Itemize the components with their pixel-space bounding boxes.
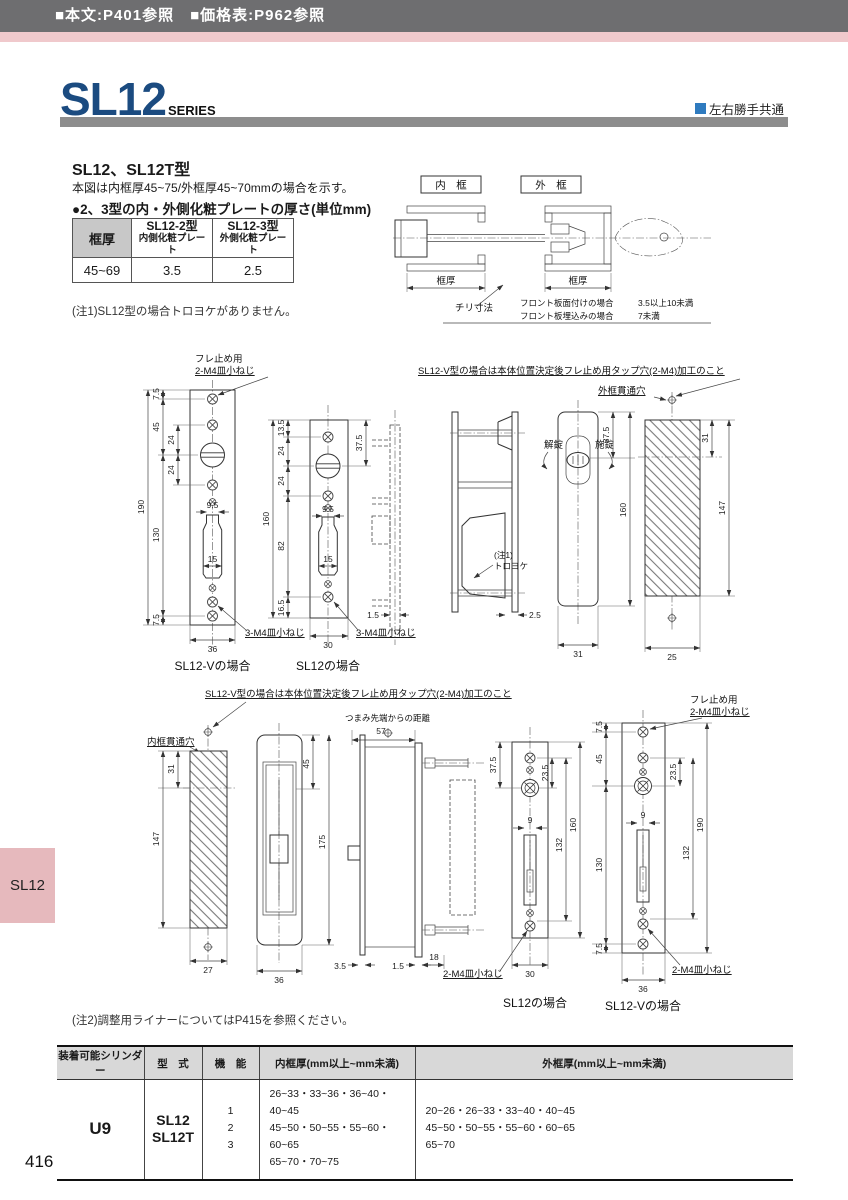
outer-frame-plate-upper: 31 147 25 — [638, 392, 735, 662]
dim-rp-175: 175 — [317, 835, 327, 849]
dim-sv-3.5: 3.5 — [334, 961, 346, 971]
spec-header-model: 型 式 — [144, 1047, 202, 1080]
inner-thickness-cell: 26~33・33~36・36~40・40~45 45~50・50~55・55~6… — [259, 1080, 415, 1180]
dim-lhp-27: 27 — [203, 965, 213, 975]
dim-tt-160: 160 — [618, 503, 628, 517]
plate-table-col3-header: SL12-3型 外側化粧プレート — [213, 219, 294, 258]
dim-ps-16.5: 16.5 — [276, 599, 286, 616]
plate-table-frame-header: 框厚 — [73, 219, 132, 258]
dim-tt-31: 31 — [573, 649, 583, 659]
col2-model: SL12-2型 — [136, 219, 208, 233]
dim-pv-24a: 24 — [166, 435, 176, 445]
spec-table: 装着可能シリンダー 型 式 機 能 内框厚(mm以上~mm未満) 外框厚(mm以… — [57, 1047, 793, 1179]
chiri-row1-case: フロント板面付けの場合 — [520, 298, 614, 308]
model-title: SL12、SL12T型 — [72, 156, 190, 180]
dim-pv-7.5t: 7.5 — [151, 388, 161, 400]
rounded-plate-lower: 45 175 36 — [257, 723, 334, 985]
dim-pv-7.5b: 7.5 — [151, 614, 161, 626]
fure-lower-line2: 2-M4皿小ねじ — [690, 707, 750, 718]
inner-frame-section — [395, 206, 545, 271]
spec-header-row: 装着可能シリンダー 型 式 機 能 内框厚(mm以上~mm未満) 外框厚(mm以… — [57, 1047, 793, 1080]
function-1: 1 — [204, 1103, 258, 1120]
dim-lhp-31: 31 — [166, 764, 176, 774]
spec-header-cylinder: 装着可能シリンダー — [57, 1047, 144, 1080]
faceplate-sl12-lower: 37.5 9 23.5 132 160 30 2-M4皿小ねじ SL12の場合 — [443, 727, 585, 1010]
dim-lps-37.5: 37.5 — [488, 756, 498, 773]
inner-frame-box-label: 内 框 — [435, 179, 467, 192]
series-suffix: SERIES — [168, 103, 216, 118]
spec-header-outer: 外框厚(mm以上~mm未満) — [415, 1047, 793, 1080]
dim-ps-30: 30 — [323, 640, 333, 650]
dim-hp-25: 25 — [667, 652, 677, 662]
toroyoke-note-line1: (注1) — [494, 550, 513, 560]
m4-label-v-upper: 3-M4皿小ねじ — [245, 628, 305, 639]
m4-label-s-upper: 3-M4皿小ねじ — [356, 628, 416, 639]
blue-square-icon — [695, 103, 706, 114]
dim-sv-18: 18 — [429, 952, 439, 962]
outer-frame-box-label: 外 框 — [535, 179, 567, 192]
dim-pv-9.5: 9.5 — [207, 500, 219, 510]
thumbturn-plate-upper: 解錠 施錠 37.5 160 31 — [544, 400, 635, 659]
caption-sl12v-upper: SL12-Vの場合 — [174, 658, 250, 673]
note1: (注1)SL12型の場合トロヨケがありません。 — [72, 303, 297, 319]
model-cell: SL12 SL12T — [144, 1080, 202, 1180]
upper-drawing-set: フレ止め用 2-M4皿小ねじ SL12-V型の場合は本体位置決定後フレ止め用タッ… — [50, 350, 790, 680]
model-description: 本図は内框厚45~75/外框厚45~70mmの場合を示す。 — [72, 179, 354, 196]
tap-note-lower: SL12-V型の場合は本体位置決定後フレ止め用タップ穴(2-M4)加工のこと — [205, 688, 512, 700]
frame-section-diagram: 内 框 外 框 — [393, 172, 713, 324]
chiri-row1-val: 3.5以上10未満 — [638, 298, 694, 308]
dim-lpv-7.5t: 7.5 — [594, 721, 604, 733]
function-2: 2 — [204, 1120, 258, 1137]
title-divider-bar — [60, 117, 788, 127]
page-number: 416 — [25, 1152, 53, 1172]
inner-range-1: 26~33・33~36・36~40・40~45 — [270, 1086, 414, 1120]
dim-lpv-45: 45 — [594, 754, 604, 764]
fure-label-line1: フレ止め用 — [195, 353, 243, 365]
dim-lps-160: 160 — [568, 818, 578, 832]
plate-thickness-heading: ●2、3型の内・外側化粧プレートの厚さ(単位mm) — [72, 198, 371, 218]
catalog-page: ■本文:P401参照 ■価格表:P962参照 SL12 SERIES 左右勝手共… — [0, 0, 848, 1200]
key-outline — [615, 219, 682, 256]
dim-lps-23.5: 23.5 — [540, 764, 550, 781]
dim-ps-15: 15 — [323, 554, 333, 564]
col2-desc: 内側化粧プレート — [136, 233, 208, 257]
dim-lps-132: 132 — [554, 838, 564, 852]
dim-lpv-9: 9 — [641, 810, 646, 820]
col3-desc: 外側化粧プレート — [217, 233, 289, 257]
dim-hp-31: 31 — [700, 433, 710, 443]
dim-sv-1.5: 1.5 — [392, 961, 404, 971]
function-cell: 1 2 3 — [202, 1080, 259, 1180]
dim-lpv-7.5b: 7.5 — [594, 943, 604, 955]
unlock-label: 解錠 — [544, 439, 564, 451]
faceplate-sl12v-lower: フレ止め用 2-M4皿小ねじ 7.5 45 130 7.5 9 — [592, 694, 750, 1013]
outer-thickness-cell: 20~26・26~33・33~40・40~45 45~50・50~55・55~6… — [415, 1080, 793, 1180]
dim-pv-36: 36 — [208, 644, 218, 654]
pink-accent-strip — [0, 32, 848, 42]
dim-hp-147: 147 — [717, 501, 727, 515]
dim-sva-1.5: 1.5 — [367, 610, 379, 620]
dim-lpv-36: 36 — [638, 984, 648, 994]
side-index-tab: SL12 — [0, 848, 55, 923]
dim-ps-24a: 24 — [276, 446, 286, 456]
dim-lpv-130: 130 — [594, 858, 604, 872]
dim-lhp-147: 147 — [151, 832, 161, 846]
plate-table-row: 45~69 3.5 2.5 — [73, 258, 294, 283]
m4-label-v-lower: 2-M4皿小ねじ — [672, 965, 732, 976]
spec-data-row: U9 SL12 SL12T 1 2 3 26~33・33~36・36~40・40… — [57, 1080, 793, 1180]
tap-note-upper: SL12-V型の場合は本体位置決定後フレ止め用タップ穴(2-M4)加工のこと — [418, 365, 725, 377]
top-reference-text: ■本文:P401参照 ■価格表:P962参照 — [55, 0, 325, 32]
handedness-label: 左右勝手共通 — [709, 99, 784, 118]
side-view-a-upper: 1.5 — [367, 410, 409, 645]
col3-model: SL12-3型 — [217, 219, 289, 233]
fure-label-line2: 2-M4皿小ねじ — [195, 366, 255, 377]
dim-lpv-23.5: 23.5 — [668, 763, 678, 780]
outer-range-3: 65~70 — [426, 1137, 793, 1154]
m4-label-s-lower: 2-M4皿小ねじ — [443, 969, 503, 980]
toroyoke-note-line2: トロヨケ — [494, 561, 528, 571]
caption-sl12v-lower: SL12-Vの場合 — [605, 998, 681, 1013]
caption-sl12-upper: SL12の場合 — [296, 658, 360, 673]
chiri-row2-case: フロント板埋込みの場合 — [520, 311, 614, 321]
plate-thickness-table: 框厚 SL12-2型 内側化粧プレート SL12-3型 外側化粧プレート 45~… — [72, 218, 294, 283]
dim-ps-37.5: 37.5 — [354, 434, 364, 451]
model-2: SL12T — [146, 1129, 201, 1146]
note2: (注2)調整用ライナーについてはP415を参照ください。 — [72, 1012, 354, 1028]
dim-svb-2.5: 2.5 — [529, 610, 541, 620]
dim-ps-13.5: 13.5 — [276, 419, 286, 436]
handedness-note: 左右勝手共通 — [695, 99, 784, 118]
chiri-row2-val: 7未満 — [638, 311, 660, 321]
caption-sl12-lower: SL12の場合 — [503, 995, 567, 1010]
inner-range-3: 65~70・70~75 — [270, 1154, 414, 1171]
inner-plate-value: 3.5 — [132, 258, 213, 283]
outer-range-1: 20~26・26~33・33~40・40~45 — [426, 1103, 793, 1120]
frame-dim-left-label: 框厚 — [436, 275, 456, 287]
dim-lps-30: 30 — [525, 969, 535, 979]
outer-plate-value: 2.5 — [213, 258, 294, 283]
top-reference-bar: ■本文:P401参照 ■価格表:P962参照 — [0, 0, 848, 32]
dim-rp-45: 45 — [301, 759, 311, 769]
function-3: 3 — [204, 1137, 258, 1154]
spec-header-function: 機 能 — [202, 1047, 259, 1080]
inner-range-2: 45~50・50~55・55~60・60~65 — [270, 1120, 414, 1154]
dim-lpv-190: 190 — [695, 818, 705, 832]
dim-pv-190: 190 — [136, 500, 146, 514]
dim-ps-82: 82 — [276, 541, 286, 551]
inner-frame-plate-lower: 31 147 27 — [151, 725, 235, 975]
outer-range-2: 45~50・50~55・55~60・60~65 — [426, 1120, 793, 1137]
tip-distance-label: つまみ先端からの距離 — [345, 713, 431, 723]
dim-pv-45: 45 — [151, 422, 161, 432]
inner-hole-label: 内框貫通穴 — [147, 736, 195, 748]
dim-pv-15: 15 — [208, 554, 218, 564]
dim-tt-37.5: 37.5 — [601, 426, 611, 443]
spec-table-wrap: 装着可能シリンダー 型 式 機 能 内框厚(mm以上~mm未満) 外框厚(mm以… — [57, 1045, 793, 1181]
dim-ps-160: 160 — [261, 512, 271, 526]
dim-pv-130: 130 — [151, 528, 161, 542]
dim-rp-36: 36 — [274, 975, 284, 985]
cylinder-cell: U9 — [57, 1080, 144, 1180]
side-view-lower: つまみ先端からの距離 57 3.5 1.5 18 — [334, 713, 485, 971]
outer-frame-section — [545, 206, 611, 271]
dim-pv-24b: 24 — [166, 465, 176, 475]
frame-thickness-dims: 框厚 框厚 — [407, 273, 611, 292]
side-view-b-upper: (注1) トロヨケ 2.5 — [450, 412, 541, 620]
frame-range-cell: 45~69 — [73, 258, 132, 283]
spec-header-inner: 内框厚(mm以上~mm未満) — [259, 1047, 415, 1080]
outer-hole-label: 外框貫通穴 — [598, 385, 646, 397]
frame-dim-right-label: 框厚 — [568, 275, 588, 287]
dim-lpv-132: 132 — [681, 846, 691, 860]
chiri-label: チリ寸法 — [455, 302, 493, 314]
model-1: SL12 — [146, 1112, 201, 1129]
dim-ps-24b: 24 — [276, 476, 286, 486]
lower-drawing-set: SL12-V型の場合は本体位置決定後フレ止め用タップ穴(2-M4)加工のこと 内… — [50, 685, 790, 1020]
plate-table-col2-header: SL12-2型 内側化粧プレート — [132, 219, 213, 258]
dim-ps-9.5: 9.5 — [322, 504, 334, 514]
fure-lower-line1: フレ止め用 — [690, 694, 738, 706]
chiri-note: チリ寸法 フロント板面付けの場合 3.5以上10未満 フロント板埋込みの場合 7… — [443, 285, 711, 323]
dim-lps-9: 9 — [528, 815, 533, 825]
